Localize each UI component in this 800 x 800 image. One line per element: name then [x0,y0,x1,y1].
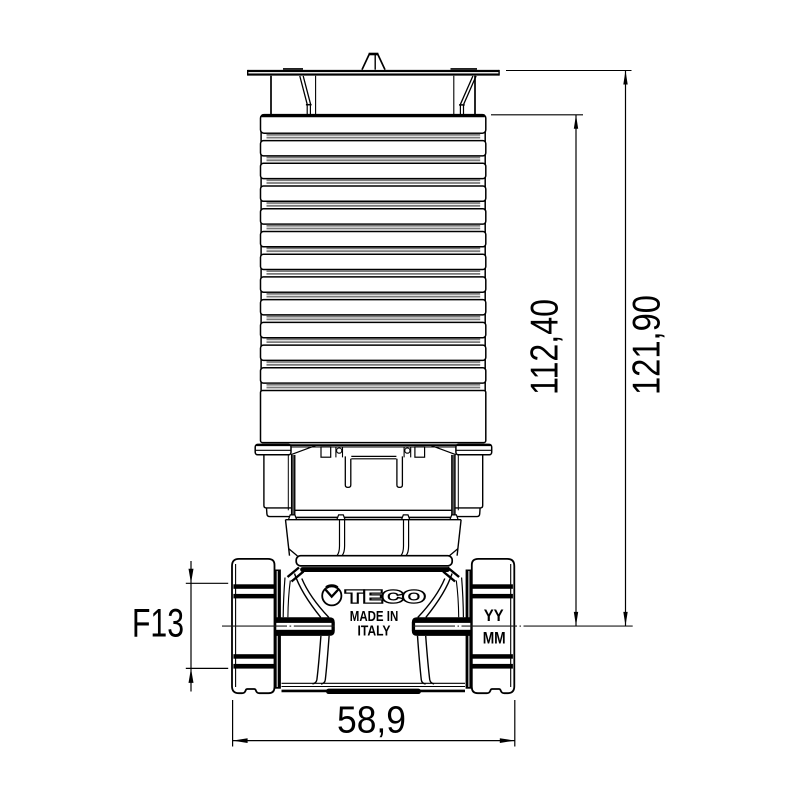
svg-text:YY: YY [484,607,504,625]
svg-text:ITALY: ITALY [358,623,391,639]
svg-text:TECO: TECO [346,586,425,606]
svg-text:MM: MM [483,630,506,648]
svg-text:F13: F13 [132,601,184,645]
svg-text:121,90: 121,90 [626,295,669,395]
svg-text:112,40: 112,40 [524,299,567,395]
svg-text:58,9: 58,9 [337,700,406,742]
